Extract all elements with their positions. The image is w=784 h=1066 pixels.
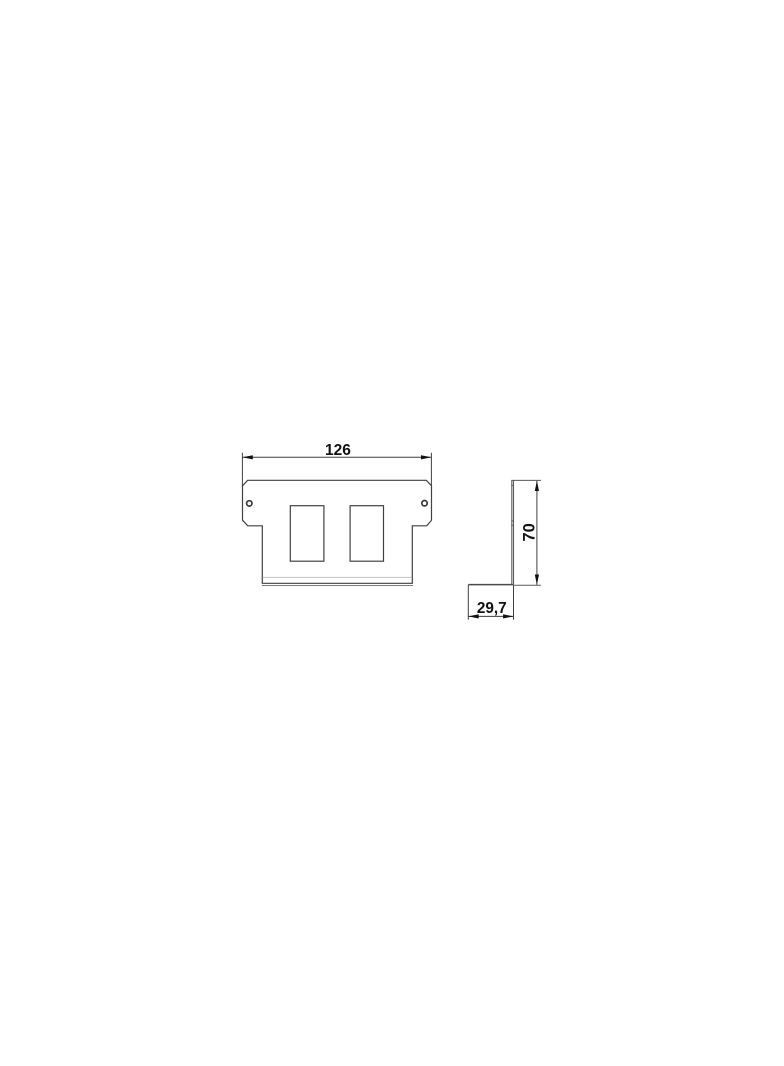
svg-text:70: 70 <box>520 523 538 541</box>
svg-text:29,7: 29,7 <box>477 600 507 617</box>
svg-text:126: 126 <box>325 442 351 459</box>
